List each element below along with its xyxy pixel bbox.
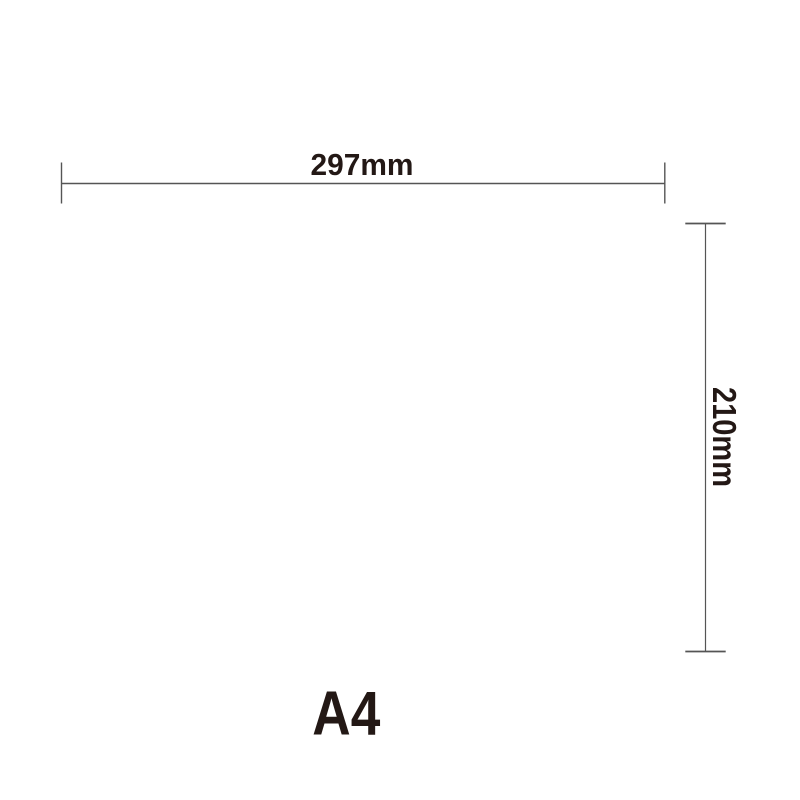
svg-text:297mm: 297mm — [311, 148, 414, 182]
svg-text:A4: A4 — [312, 680, 380, 749]
svg-text:210mm: 210mm — [706, 387, 743, 487]
